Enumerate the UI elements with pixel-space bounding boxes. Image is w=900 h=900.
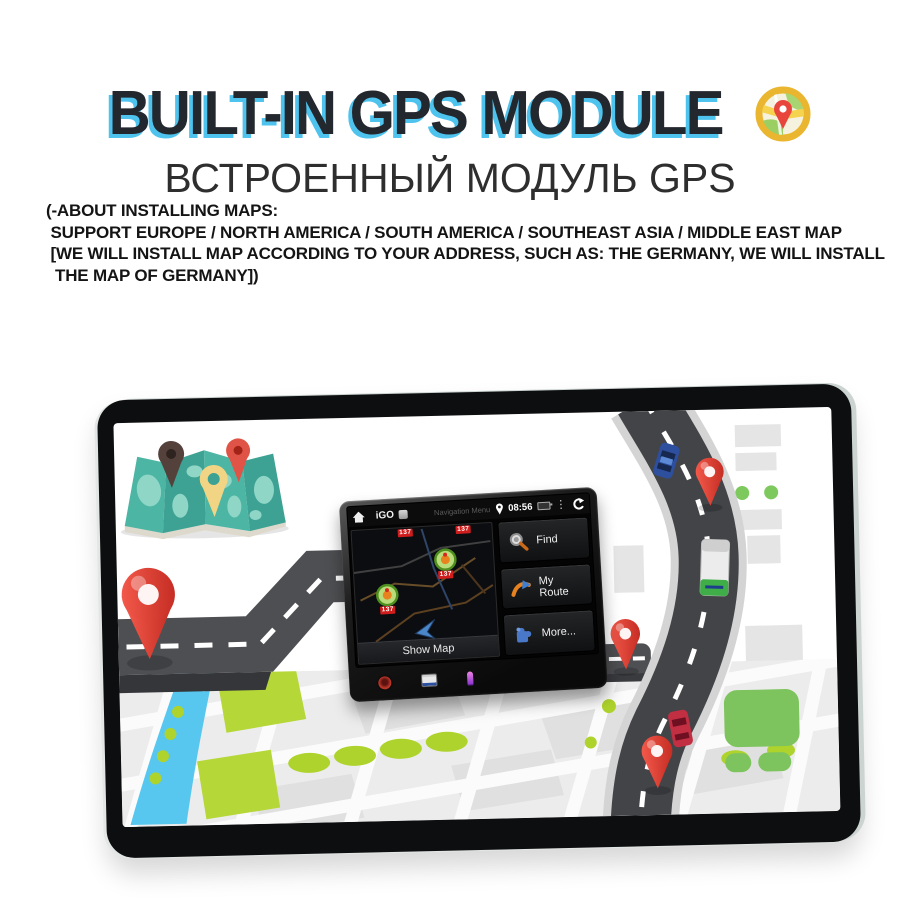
nav-app-name: iGO: [375, 509, 394, 521]
note-line: THE MAP OF GERMANY]): [46, 265, 885, 287]
tree-dots: [735, 485, 778, 500]
power-icon[interactable]: [378, 676, 392, 690]
nav-more-button[interactable]: More...: [503, 610, 596, 657]
nav-clock: 08:56: [508, 501, 533, 513]
subtitle-russian: ВСТРОЕННЫЙ МОДУЛЬ GPS: [0, 155, 900, 202]
camera-tag: 137: [398, 528, 414, 537]
speed-camera-icon: [377, 585, 398, 606]
page-title: BUILT-IN GPS MODULE: [109, 82, 723, 145]
tv-icon[interactable]: [421, 673, 438, 687]
speed-camera-icon: [435, 549, 456, 570]
nav-menu: Find My Route: [497, 516, 596, 656]
camera-tag: 137: [455, 525, 471, 534]
nav-button-label: My Route: [538, 572, 582, 598]
nav-map-preview[interactable]: 137 137 137 137 Show Map: [350, 522, 500, 665]
bus-icon: [700, 539, 730, 596]
note-line: SUPPORT EUROPE / NORTH AMERICA / SOUTH A…: [46, 222, 885, 244]
map-install-notes: (-ABOUT INSTALLING MAPS: SUPPORT EUROPE …: [46, 200, 885, 286]
header: BUILT-IN GPS MODULE ВСТРОЕННЫЙ МОДУЛЬ GP…: [0, 82, 900, 202]
park-square: [724, 689, 801, 773]
nav-button-label: Find: [536, 533, 558, 546]
route-arrow-icon: [511, 577, 532, 598]
tablet-screen: iGO Navigation Menu 08:56 ⋮: [113, 407, 840, 827]
position-arrow-icon: [415, 619, 436, 639]
nav-screen: iGO Navigation Menu 08:56 ⋮: [346, 492, 599, 668]
nav-my-route-button[interactable]: My Route: [500, 563, 593, 610]
battery-icon: [537, 502, 550, 511]
puzzle-icon: [513, 624, 534, 645]
note-line: (-ABOUT INSTALLING MAPS:: [46, 200, 885, 222]
magnifier-icon: [508, 531, 529, 552]
gps-map-badge-icon: [755, 86, 811, 142]
location-pin-icon: [495, 503, 504, 514]
sd-card-icon: [399, 509, 409, 519]
menu-dots-icon[interactable]: ⋮: [555, 499, 567, 511]
camera-tag: 137: [380, 606, 396, 615]
note-line: [WE WILL INSTALL MAP ACCORDING TO YOUR A…: [46, 243, 885, 265]
camera-tag: 137: [438, 570, 454, 579]
back-icon[interactable]: [571, 498, 585, 511]
lamp-icon[interactable]: [467, 671, 474, 684]
nav-button-label: More...: [541, 625, 576, 639]
poster: BUILT-IN GPS MODULE ВСТРОЕННЫЙ МОДУЛЬ GP…: [0, 0, 900, 900]
tablet-device: iGO Navigation Menu 08:56 ⋮: [97, 384, 861, 859]
nav-find-button[interactable]: Find: [497, 516, 590, 563]
nav-unit-screenshot: iGO Navigation Menu 08:56 ⋮: [339, 487, 608, 703]
home-icon[interactable]: [352, 511, 365, 523]
nav-screen-title: Navigation Menu: [434, 505, 491, 517]
world-map-folded: [119, 437, 289, 540]
